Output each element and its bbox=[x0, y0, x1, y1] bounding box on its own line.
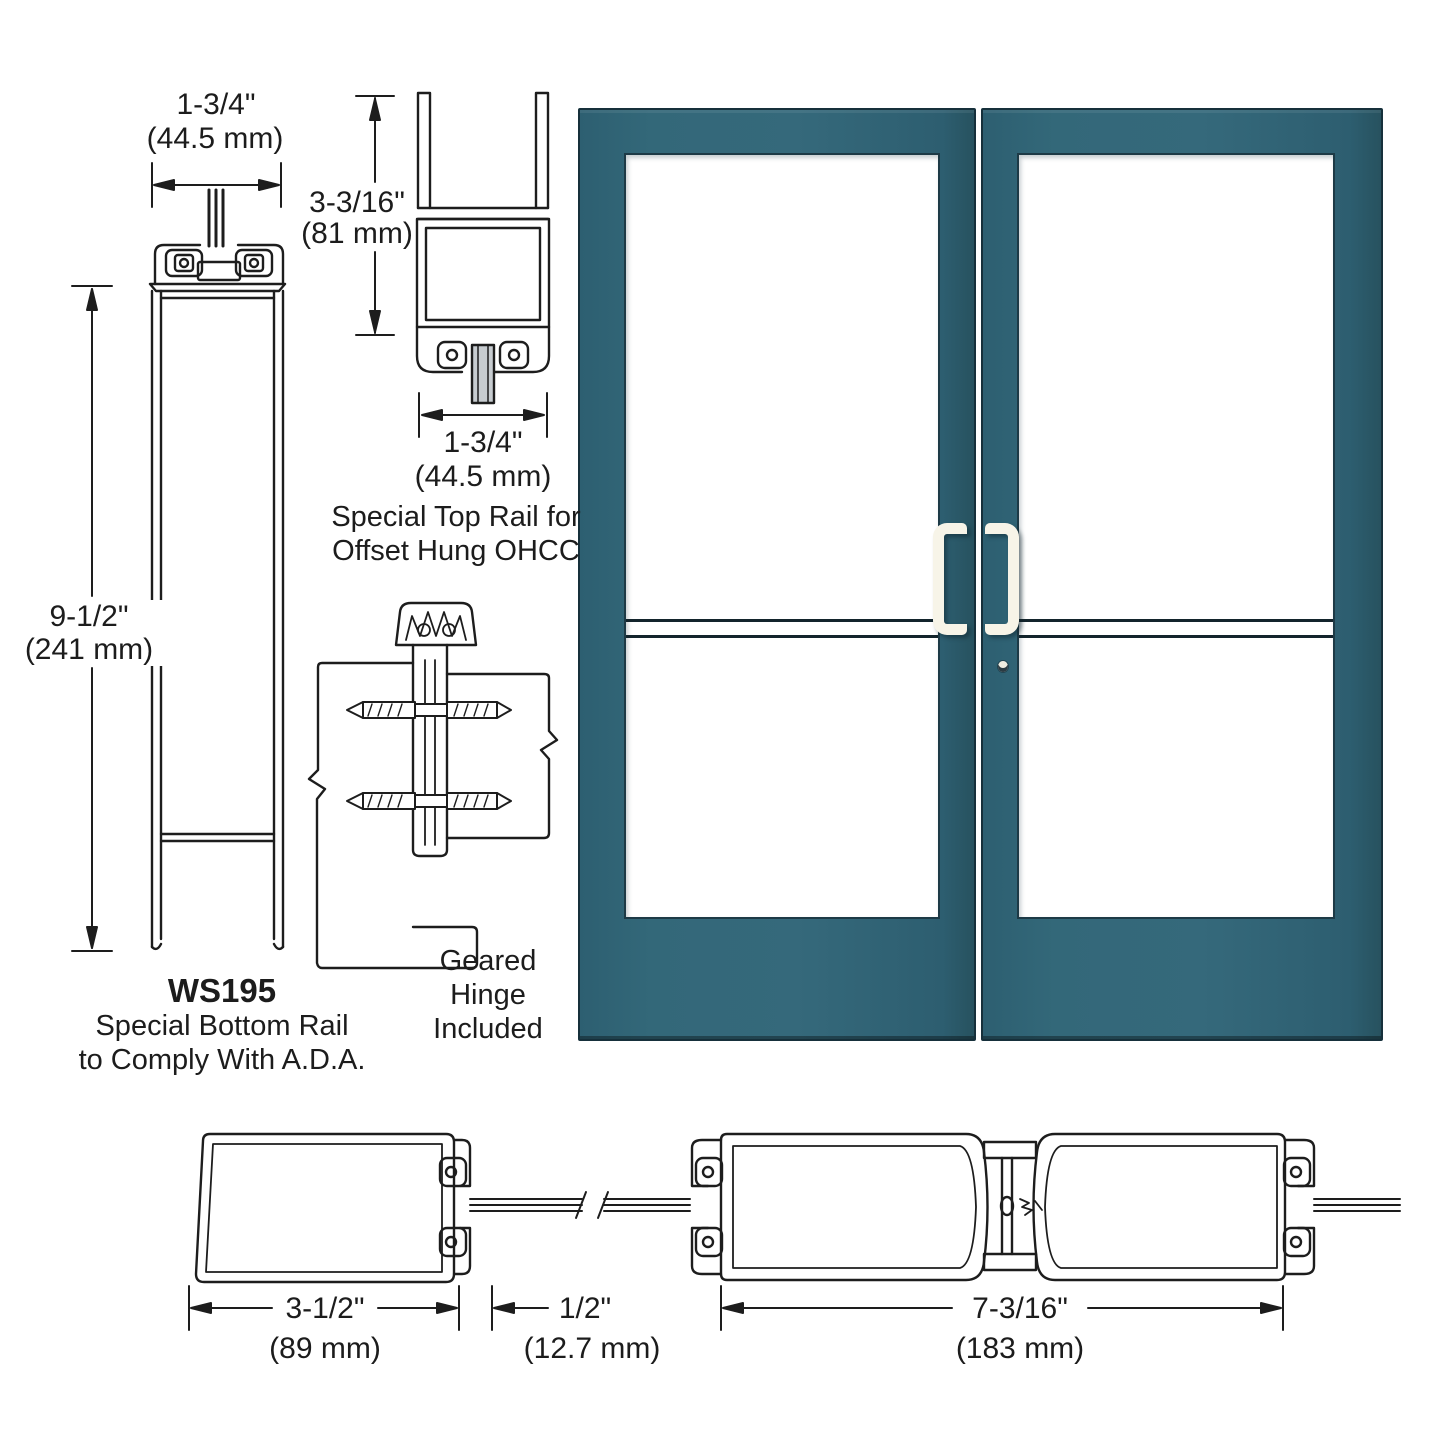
bottom-rail-section-drawing bbox=[150, 190, 285, 949]
dim-pair-width-mm: (183 mm) bbox=[940, 1332, 1100, 1365]
dim-bottom-rail-width-in: 1-3/4" bbox=[136, 88, 296, 121]
line-art-layer bbox=[0, 0, 1445, 1445]
dim-glass-stop-mm: (12.7 mm) bbox=[492, 1332, 692, 1365]
dim-bottom-rail-height-mm: (241 mm) bbox=[3, 633, 175, 666]
geared-hinge-drawing bbox=[309, 603, 557, 968]
dim-top-rail-height-in: 3-3/16" bbox=[277, 186, 437, 219]
bottom-rail-caption-line1: Special Bottom Rail bbox=[72, 1010, 372, 1043]
dim-bottom-rail-height-in: 9-1/2" bbox=[13, 600, 165, 633]
dim-top-rail-width-mm: (44.5 mm) bbox=[383, 460, 583, 493]
hinge-caption-line1: Geared bbox=[388, 945, 588, 978]
dim-pair-width-in: 7-3/16" bbox=[940, 1292, 1100, 1325]
dim-stile-width-in: 3-1/2" bbox=[245, 1292, 405, 1325]
dim-stile-width-mm: (89 mm) bbox=[245, 1332, 405, 1365]
hinge-caption-line2: Hinge bbox=[388, 979, 588, 1012]
hinge-caption-line3: Included bbox=[388, 1013, 588, 1046]
top-rail-caption-line2: Offset Hung OHCC bbox=[306, 535, 606, 568]
bottom-rail-model: WS195 bbox=[122, 974, 322, 1007]
stile-section-drawing bbox=[196, 1134, 690, 1282]
dim-top-rail-width-in: 1-3/4" bbox=[403, 426, 563, 459]
meeting-stiles-section-drawing bbox=[692, 1134, 1400, 1280]
dim-bottom-rail-width-mm: (44.5 mm) bbox=[115, 122, 315, 155]
bottom-rail-caption-line2: to Comply With A.D.A. bbox=[72, 1044, 372, 1077]
dim-glass-stop-in: 1/2" bbox=[505, 1292, 665, 1325]
dim-top-rail-height-mm: (81 mm) bbox=[277, 217, 437, 250]
top-rail-caption-line1: Special Top Rail for bbox=[306, 501, 606, 534]
door-spec-diagram: 1-3/4" (44.5 mm) 3-3/16" (81 mm) 1-3/4" … bbox=[0, 0, 1445, 1445]
